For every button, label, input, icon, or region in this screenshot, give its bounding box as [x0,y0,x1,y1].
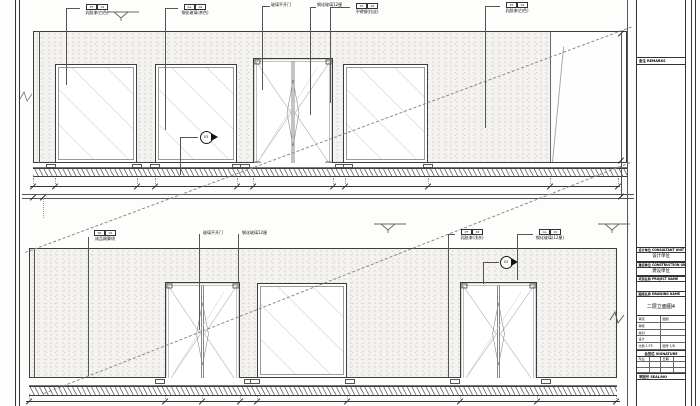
sill-block [345,379,355,384]
level-marker-icon [372,220,408,234]
title-block-sign-cell: 专业 [637,357,650,361]
tag-label: 乳胶漆(白色) [500,9,534,14]
title-block-info-row: 设计 [637,336,685,343]
dim-extension-line [29,396,30,401]
dimension-line [26,401,620,402]
separator-line [22,194,634,195]
sill-block [423,164,433,168]
callout-label: 玻璃平开门 [203,231,223,236]
title-block-sign-cell [674,362,685,366]
material-tag: PT02 乳胶漆(浅灰) [455,229,489,241]
title-block-remark-band: 备注 REMARKS [637,57,685,65]
tag-label: 不锈钢(拉丝) [350,10,384,15]
skirting-sill-strip [29,378,617,386]
sill-block [250,379,260,384]
leader-line [330,7,350,8]
title-block-sign-cell [661,362,674,366]
dim-extension-line [550,178,551,186]
dim-extension-line [202,396,203,401]
floor-hatch-band [29,386,617,396]
material-tag: PT01 乳胶漆(白色) [500,2,534,14]
leader-line [180,137,181,175]
title-block-sign-cell [674,368,685,372]
title-block: 备注 REMARKS 设计单位 CONSULTANT UNIT 设计单位 建设单… [636,0,686,406]
dim-extension-line [428,178,429,186]
leader-line [199,234,200,330]
dim-extension-line [237,178,238,186]
leader-line [485,6,486,128]
dim-extension-line [345,178,346,186]
leader-line [483,262,499,263]
title-block-sign-cell [637,362,650,366]
glass-double-door [460,282,537,386]
break-mark-icon [18,90,34,104]
callout-label: 钢化玻璃12厘 [242,231,267,236]
section-marker-arrow-icon [211,133,218,141]
dim-extension-line [55,178,56,186]
title-block-sign-cell [650,362,661,366]
title-block-info-cell: 审定 [637,316,661,322]
dim-extension-line [616,396,617,401]
door-glazing-pattern [460,282,537,386]
title-block-sign-cell [650,368,661,372]
dim-extension-line [165,396,166,401]
title-block-seal-band: 审图号 SEAL/NO [637,373,685,380]
wall-corner-line [34,248,35,378]
dim-extension-line [43,198,44,218]
tag-label: 钢化玻璃(茶色) [178,11,212,16]
title-block-info-cell [661,330,685,336]
leader-line [180,137,198,138]
callout-label: 玻璃平开门 [271,3,291,8]
dim-extension-line [137,178,138,186]
dim-extension-line [240,396,241,401]
title-block-info-cell [661,336,685,342]
wall-corner-line [39,31,40,163]
leader-line [238,234,239,283]
dim-extension-line [257,396,258,401]
drawing-sheet: PT01 乳胶漆(白色) GL02 钢化玻璃(茶色) 玻璃平开门 钢化玻璃12厘… [0,0,700,406]
title-block-info-cell: 校对 [637,330,661,336]
title-block-info-cell: 设计 [637,336,661,342]
leader-line [165,8,178,9]
leader-line [448,234,455,235]
title-block-row-value: 建设单位 [637,268,685,275]
leader-line [517,234,533,235]
title-block-sign-cell: 日期 [661,357,674,361]
leader-line [88,237,89,376]
material-tag: GL01 钢化玻璃(12厘) [533,229,567,241]
title-block-info-row: 比例 1:75图号 1/8 [637,343,685,350]
sheet-border-line [19,0,20,406]
title-block-info-cell: 审核 [637,323,661,329]
title-block-info-row: 审核 [637,323,685,330]
sill-block [150,164,160,168]
level-marker-icon [105,8,141,22]
dimension-line [30,186,620,187]
drawing-name: 二层立面图4 [637,303,685,313]
leader-line [262,6,270,7]
door-glazing-pattern [165,282,240,386]
title-block-sign-cell [650,357,661,361]
tag-label: 乳胶漆(浅灰) [455,236,489,241]
dim-extension-line [347,396,348,401]
title-block-info-cell [661,323,685,329]
floor-hatch-band [33,168,627,177]
dim-extension-line [333,178,334,186]
leader-line [165,8,166,130]
title-block-sign-cell [674,357,685,361]
dim-extension-line [253,178,254,186]
dim-extension-line [618,178,619,186]
glass-panel [155,64,237,163]
leader-line [310,7,311,115]
title-block-sign-band: 会签栏 SIGNATURE [637,350,685,357]
title-block-info-row: 校对 [637,330,685,337]
sill-block [46,164,56,168]
glass-double-door [165,282,240,386]
leader-line [448,234,449,377]
title-block-row-header: 图纸名称 DRAWING NAME [637,291,685,297]
leader-line [66,8,80,9]
dim-extension-line [155,178,156,186]
material-tag: SK01 成品踢脚线 [88,230,122,242]
title-block-row-value: 设计单位 [637,253,685,260]
sheet-border-line [695,0,696,406]
title-block-info-row: 审定图别 [637,316,685,323]
sheet-border-line [15,0,16,406]
sill-block [155,379,165,384]
sill-block [343,164,353,168]
leader-line [330,7,331,103]
title-block-info-cell: 图号 1/8 [661,343,685,349]
leader-line [310,7,316,8]
title-block-sign-cell [661,368,674,372]
dim-extension-line [33,178,34,186]
material-tag: ST01 不锈钢(拉丝) [350,3,384,15]
dim-extension-line [460,396,461,401]
sheet-border-line [691,0,692,406]
title-block-sign-cell [637,368,650,372]
material-tag: GL02 钢化玻璃(茶色) [178,4,212,16]
glass-panel [343,64,428,163]
dim-extension-line [537,396,538,401]
tag-label: 钢化玻璃(12厘) [533,236,567,241]
title-block-sign-table: 专业日期 [637,357,685,373]
break-mark-icon [608,310,626,326]
glass-panel [55,64,137,163]
vertical-dimension-line [621,33,622,196]
sill-block [450,379,460,384]
leader-line [517,234,518,280]
title-block-info-table: 审定图别审核校对设计比例 1:75图号 1/8 [637,316,685,350]
title-block-info-cell: 比例 1:75 [637,343,661,349]
leader-line [485,6,500,7]
title-block-row-header: 项目名称 PROJECT NAME [637,276,685,282]
sill-block [240,164,250,168]
sheet-inner-border-line [627,0,628,406]
sill-block [132,164,142,168]
tag-label: 成品踢脚线 [88,237,122,242]
leader-line [66,8,67,85]
title-block-info-cell: 图别 [661,316,685,322]
sill-block [541,379,551,384]
level-marker-icon [596,220,632,234]
leader-line [262,6,263,90]
leader-line [483,262,484,284]
glass-panel [257,283,347,378]
